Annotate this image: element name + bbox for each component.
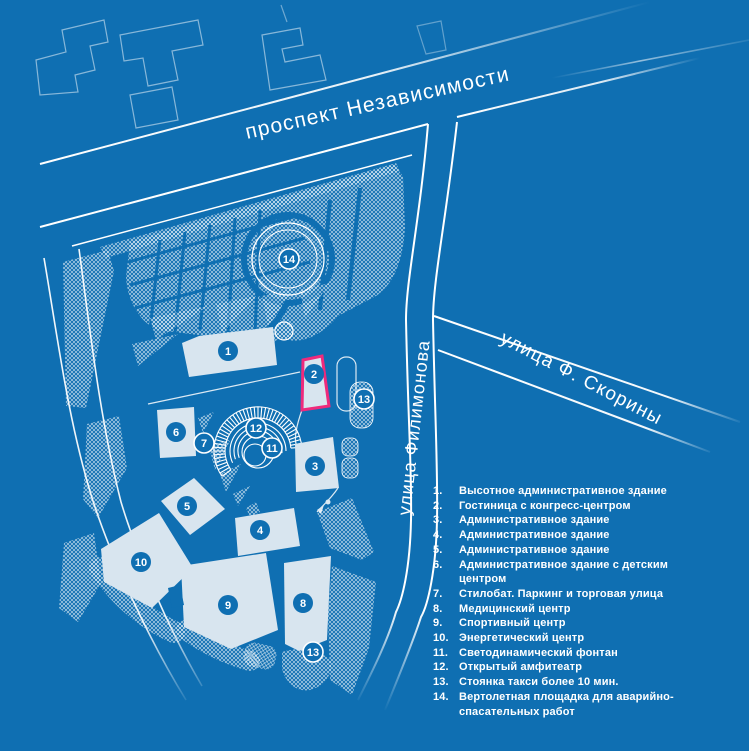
legend-item-label: Вертолетная площадка для аварийно-спасат… xyxy=(459,690,714,719)
building-badge-3: 3 xyxy=(305,456,325,476)
legend-item-7: 7.Стилобат. Паркинг и торговая улица xyxy=(433,587,733,602)
legend-item-number: 14. xyxy=(433,690,459,719)
legend-item-label: Административное здание xyxy=(459,543,714,558)
legend-item-1: 1.Высотное административное здание xyxy=(433,484,733,499)
legend-item-label: Спортивный центр xyxy=(459,616,714,631)
legend-item-13: 13.Стоянка такси более 10 мин. xyxy=(433,675,733,690)
building-badge-12: 12 xyxy=(246,418,266,438)
avenue-north-edge xyxy=(40,2,650,164)
legend-item-number: 3. xyxy=(433,513,459,528)
svg-text:12: 12 xyxy=(250,423,262,435)
legend-item-10: 10.Энергетический центр xyxy=(433,631,733,646)
legend-item-6: 6.Административное здание с детским цент… xyxy=(433,558,733,587)
legend-item-label: Светодинамический фонтан xyxy=(459,646,714,661)
svg-text:1: 1 xyxy=(225,346,231,358)
svg-text:3: 3 xyxy=(312,461,318,473)
svg-text:8: 8 xyxy=(300,598,306,610)
legend-item-label: Медицинский центр xyxy=(459,602,714,617)
building-10-notch xyxy=(168,585,184,608)
legend-item-9: 9.Спортивный центр xyxy=(433,616,733,631)
legend-item-number: 1. xyxy=(433,484,459,499)
building-badge-13: 13 xyxy=(354,389,374,409)
legend-item-number: 8. xyxy=(433,602,459,617)
legend: 1.Высотное административное здание2.Гост… xyxy=(433,484,733,719)
legend-item-label: Административное здание xyxy=(459,528,714,543)
svg-text:10: 10 xyxy=(135,557,147,569)
legend-item-number: 10. xyxy=(433,631,459,646)
legend-item-number: 5. xyxy=(433,543,459,558)
svg-text:4: 4 xyxy=(257,525,264,537)
svg-text:7: 7 xyxy=(201,438,207,450)
site-plan: проспект Независимости улица Филимонова … xyxy=(0,0,749,751)
legend-item-label: Гостиница с конгресс-центром xyxy=(459,499,714,514)
legend-item-5: 5.Административное здание xyxy=(433,543,733,558)
svg-text:14: 14 xyxy=(283,254,296,266)
legend-item-number: 12. xyxy=(433,660,459,675)
legend-item-label: Стилобат. Паркинг и торговая улица xyxy=(459,587,714,602)
legend-item-label: Энергетический центр xyxy=(459,631,714,646)
park-fountain xyxy=(275,322,293,340)
legend-item-8: 8.Медицинский центр xyxy=(433,602,733,617)
building-badge-7: 7 xyxy=(194,433,214,453)
legend-item-number: 13. xyxy=(433,675,459,690)
building-badge-6: 6 xyxy=(166,422,186,442)
legend-item-11: 11.Светодинамический фонтан xyxy=(433,646,733,661)
legend-item-14: 14.Вертолетная площадка для аварийно-спа… xyxy=(433,690,733,719)
legend-item-label: Открытый амфитеатр xyxy=(459,660,714,675)
legend-item-label: Административное здание xyxy=(459,513,714,528)
legend-item-number: 9. xyxy=(433,616,459,631)
building-badge-4: 4 xyxy=(250,520,270,540)
legend-item-number: 7. xyxy=(433,587,459,602)
legend-item-number: 6. xyxy=(433,558,459,587)
legend-item-2: 2.Гостиница с конгресс-центром xyxy=(433,499,733,514)
legend-item-4: 4.Административное здание xyxy=(433,528,733,543)
legend-item-number: 4. xyxy=(433,528,459,543)
building-badge-13: 13 xyxy=(303,642,323,662)
legend-item-label: Стоянка такси более 10 мин. xyxy=(459,675,714,690)
legend-item-3: 3.Административное здание xyxy=(433,513,733,528)
building-badge-5: 5 xyxy=(177,496,197,516)
svg-text:13: 13 xyxy=(358,394,370,406)
svg-text:13: 13 xyxy=(307,647,319,659)
building-badge-9: 9 xyxy=(218,595,238,615)
svg-text:5: 5 xyxy=(184,501,190,513)
svg-text:11: 11 xyxy=(266,443,278,455)
legend-item-number: 2. xyxy=(433,499,459,514)
street-label-skoriny: улица Ф. Скорины xyxy=(497,328,666,430)
building-badge-14: 14 xyxy=(279,249,299,269)
building-badge-10: 10 xyxy=(131,552,151,572)
building-badge-2: 2 xyxy=(304,364,324,384)
legend-item-12: 12.Открытый амфитеатр xyxy=(433,660,733,675)
building-badge-8: 8 xyxy=(293,593,313,613)
legend-item-label: Высотное административное здание xyxy=(459,484,714,499)
legend-item-number: 11. xyxy=(433,646,459,661)
street-label-filimonova: улица Филимонова xyxy=(394,339,434,517)
building-badge-11: 11 xyxy=(262,438,282,458)
avenue-far-line xyxy=(552,40,749,78)
svg-text:9: 9 xyxy=(225,600,231,612)
building-badge-1: 1 xyxy=(218,341,238,361)
svg-text:6: 6 xyxy=(173,427,179,439)
legend-item-label: Административное здание с детским центро… xyxy=(459,558,714,587)
svg-text:2: 2 xyxy=(311,369,317,381)
